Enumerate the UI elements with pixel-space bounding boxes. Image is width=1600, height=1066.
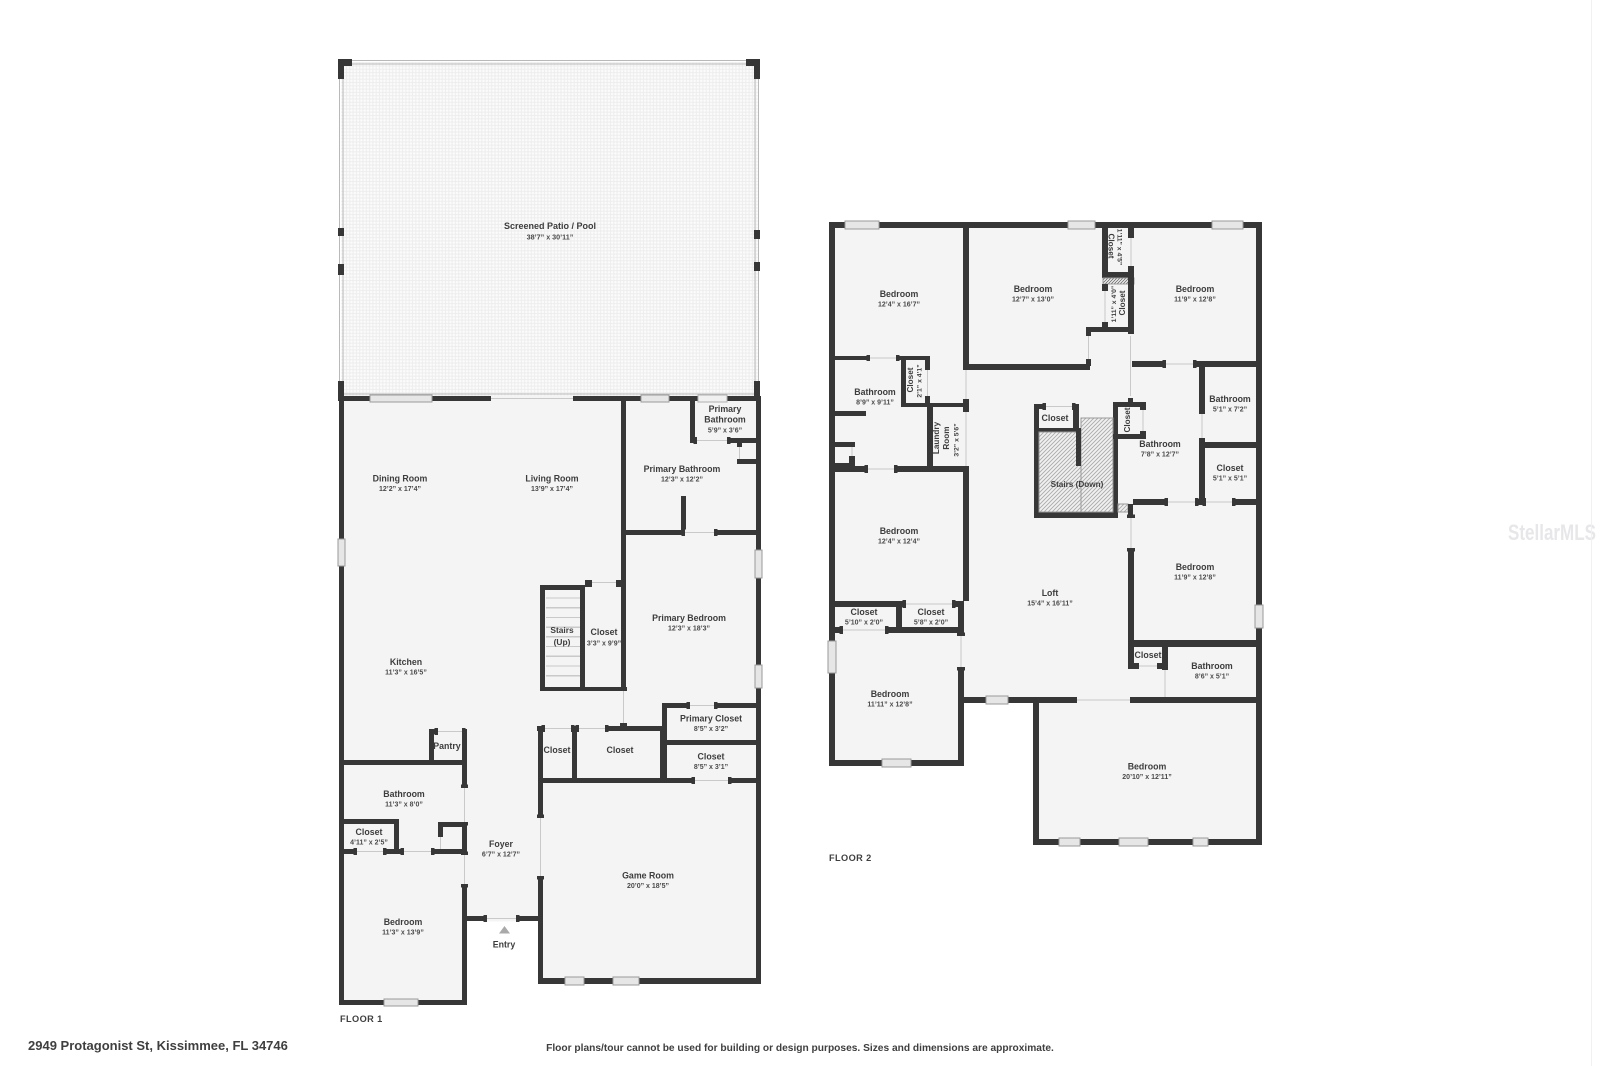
svg-text:Pantry: Pantry	[433, 741, 460, 751]
svg-text:11’3” x 8’0”: 11’3” x 8’0”	[385, 802, 423, 809]
svg-text:Foyer: Foyer	[489, 839, 514, 849]
svg-text:Primary Bedroom: Primary Bedroom	[652, 613, 726, 623]
svg-text:2’1” x 4’1”: 2’1” x 4’1”	[917, 364, 924, 397]
svg-text:8’5” x 3’1”: 8’5” x 3’1”	[694, 764, 728, 771]
svg-text:Primary Bathroom: Primary Bathroom	[644, 464, 721, 474]
svg-text:Bedroom: Bedroom	[880, 526, 919, 536]
svg-text:Bedroom: Bedroom	[1128, 762, 1167, 772]
svg-text:Closet: Closet	[698, 752, 725, 762]
svg-text:Closet: Closet	[356, 827, 383, 837]
svg-text:Closet: Closet	[1123, 407, 1132, 432]
svg-text:8’6” x 5’1”: 8’6” x 5’1”	[1195, 674, 1229, 681]
svg-text:8’5” x 3’2”: 8’5” x 3’2”	[694, 726, 728, 733]
svg-text:FLOOR 2: FLOOR 2	[829, 853, 872, 863]
svg-text:11’11” x 12’8”: 11’11” x 12’8”	[867, 702, 912, 709]
svg-text:Closet: Closet	[918, 607, 945, 617]
svg-text:Room: Room	[942, 426, 951, 449]
svg-text:12’4” x 12’4”: 12’4” x 12’4”	[878, 539, 920, 546]
svg-text:5’10” x 2’0”: 5’10” x 2’0”	[845, 620, 883, 627]
svg-text:(Up): (Up)	[554, 637, 571, 647]
svg-text:3’2” x 5’6”: 3’2” x 5’6”	[954, 423, 961, 456]
svg-text:5’8” x 2’0”: 5’8” x 2’0”	[914, 620, 948, 627]
svg-text:5’1” x 7’2”: 5’1” x 7’2”	[1213, 407, 1247, 414]
svg-text:Bathroom: Bathroom	[1139, 439, 1181, 449]
svg-text:12’3” x 12’2”: 12’3” x 12’2”	[661, 477, 703, 484]
svg-text:2949 Protagonist St, Kissimmee: 2949 Protagonist St, Kissimmee, FL 34746	[28, 1038, 288, 1053]
svg-text:Loft: Loft	[1042, 588, 1059, 598]
svg-text:15’4” x 16’11”: 15’4” x 16’11”	[1027, 601, 1073, 608]
svg-text:Primary: Primary	[709, 404, 742, 414]
svg-text:Bedroom: Bedroom	[384, 917, 423, 927]
svg-text:8’9” x 9’11”: 8’9” x 9’11”	[856, 400, 894, 407]
svg-text:Dining Room: Dining Room	[373, 474, 428, 484]
svg-text:5’1” x 5’1”: 5’1” x 5’1”	[1213, 476, 1247, 483]
svg-text:12’4” x 16’7”: 12’4” x 16’7”	[878, 302, 920, 309]
svg-text:FLOOR 1: FLOOR 1	[340, 1014, 383, 1024]
svg-text:Bathroom: Bathroom	[1209, 394, 1251, 404]
svg-text:Game Room: Game Room	[622, 871, 674, 881]
svg-text:13’9” x 17’4”: 13’9” x 17’4”	[531, 486, 573, 493]
svg-text:Laundry: Laundry	[932, 421, 941, 454]
svg-text:Closet: Closet	[851, 607, 878, 617]
svg-text:Closet: Closet	[906, 367, 915, 392]
svg-text:6’7” x 12’7”: 6’7” x 12’7”	[482, 852, 520, 859]
svg-text:Living Room: Living Room	[525, 474, 578, 484]
svg-text:11’9” x 12’8”: 11’9” x 12’8”	[1174, 575, 1216, 582]
svg-text:7’8” x 12’7”: 7’8” x 12’7”	[1141, 452, 1179, 459]
svg-text:11’3” x 16’5”: 11’3” x 16’5”	[385, 670, 427, 677]
svg-text:Bedroom: Bedroom	[880, 289, 919, 299]
svg-text:11’3” x 13’9”: 11’3” x 13’9”	[382, 930, 424, 937]
svg-text:3’3” x 9’9”: 3’3” x 9’9”	[587, 641, 621, 648]
svg-text:StellarMLS: StellarMLS	[1508, 520, 1596, 545]
svg-text:Primary Closet: Primary Closet	[680, 714, 742, 724]
svg-text:Closet: Closet	[544, 745, 571, 755]
svg-text:Closet: Closet	[591, 627, 618, 637]
svg-text:Bedroom: Bedroom	[871, 689, 910, 699]
svg-text:1’11” x 4’0”: 1’11” x 4’0”	[1111, 286, 1118, 323]
svg-text:20’0” x 18’5”: 20’0” x 18’5”	[627, 883, 669, 890]
svg-text:Bathroom: Bathroom	[1191, 661, 1233, 671]
svg-text:Closet: Closet	[607, 745, 634, 755]
svg-text:12’7” x 13’0”: 12’7” x 13’0”	[1012, 297, 1054, 304]
svg-text:12’2” x 17’4”: 12’2” x 17’4”	[379, 486, 421, 493]
svg-text:1’11” x 4’5”: 1’11” x 4’5”	[1116, 229, 1123, 266]
svg-text:20’10” x 12’11”: 20’10” x 12’11”	[1122, 774, 1171, 781]
svg-text:11’9” x 12’8”: 11’9” x 12’8”	[1174, 297, 1216, 304]
svg-text:Kitchen: Kitchen	[390, 657, 422, 667]
svg-text:4’11” x 2’5”: 4’11” x 2’5”	[350, 840, 388, 847]
svg-text:Closet: Closet	[1042, 413, 1069, 423]
svg-text:Bedroom: Bedroom	[1176, 284, 1215, 294]
svg-text:5’9” x 3’6”: 5’9” x 3’6”	[708, 428, 742, 435]
svg-text:Closet: Closet	[1107, 233, 1116, 258]
svg-text:Stairs: Stairs	[550, 625, 574, 635]
svg-text:Bedroom: Bedroom	[1014, 284, 1053, 294]
svg-text:Floor plans/tour cannot be use: Floor plans/tour cannot be used for buil…	[546, 1043, 1054, 1054]
svg-text:38’7” x 30’11”: 38’7” x 30’11”	[527, 233, 574, 242]
svg-text:Bathroom: Bathroom	[704, 415, 746, 425]
svg-text:Entry: Entry	[493, 940, 516, 950]
svg-text:Closet: Closet	[1217, 463, 1244, 473]
svg-text:Closet: Closet	[1118, 290, 1127, 315]
svg-text:Bathroom: Bathroom	[854, 387, 896, 397]
svg-text:Bedroom: Bedroom	[1176, 562, 1215, 572]
svg-text:Bathroom: Bathroom	[383, 789, 425, 799]
svg-text:12’3” x 18’3”: 12’3” x 18’3”	[668, 626, 710, 633]
svg-text:Stairs (Down): Stairs (Down)	[1051, 480, 1104, 489]
svg-text:Screened Patio / Pool: Screened Patio / Pool	[504, 221, 596, 231]
svg-text:Closet: Closet	[1135, 650, 1162, 660]
